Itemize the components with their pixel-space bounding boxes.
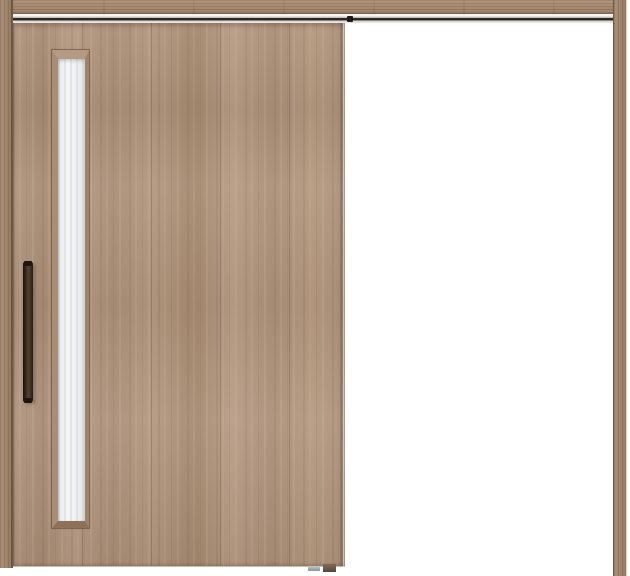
track-stopper	[347, 16, 353, 22]
glass-window-frame	[52, 50, 89, 528]
hanger-rail	[13, 14, 613, 23]
head-jamb	[13, 0, 627, 14]
door-pull-handle	[23, 262, 33, 402]
doorway-opening	[345, 23, 613, 576]
door-panel	[13, 23, 345, 567]
door-product-image	[0, 0, 630, 576]
floor-guide-bracket	[323, 564, 336, 572]
left-jamb	[0, 0, 13, 568]
floor-guide	[308, 566, 320, 571]
glass-pane	[58, 59, 85, 521]
right-jamb	[613, 0, 627, 576]
door-trailing-edge	[337, 23, 345, 566]
